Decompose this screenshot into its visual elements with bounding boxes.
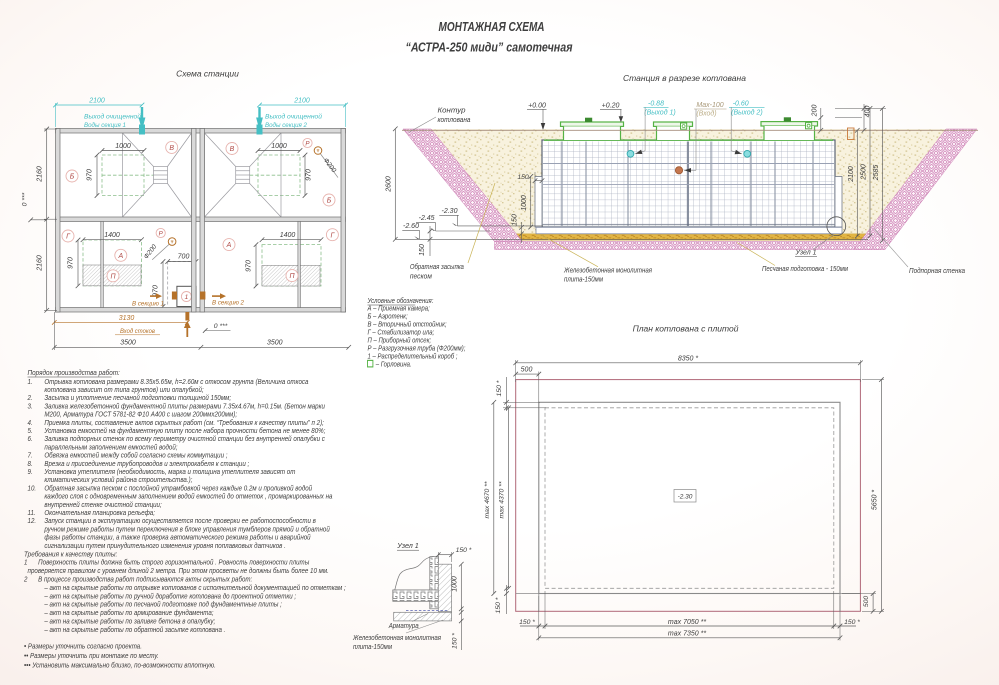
svg-text:(Выход 1): (Выход 1) [644,108,676,116]
svg-text:Засыпка и уплотнение песчаной: Засыпка и уплотнение песчаной подготовки… [44,394,231,402]
svg-text:Воды секция 1: Воды секция 1 [84,121,126,129]
svg-text:Узел 1: Узел 1 [396,541,419,550]
svg-text:– акт на скрытые работы по руч: – акт на скрытые работы по ручной дорабо… [43,592,296,600]
svg-text:150 *: 150 * [844,619,860,626]
svg-text:9.: 9. [28,469,33,476]
svg-text:Подпорная стенка: Подпорная стенка [909,267,965,275]
svg-text:Запуск станции в эксплуатацию: Запуск станции в эксплуатацию осуществля… [44,517,316,525]
svg-text:Установка утеплителя (необходи: Установка утеплителя (необходимость, мар… [43,468,295,476]
svg-text:Р – Разгрузочная труба (Ф200: Р – Разгрузочная труба (Ф200мм); [368,344,466,353]
svg-text:плита-150мм: плита-150мм [564,276,603,283]
svg-text:(Выход 2): (Выход 2) [731,108,763,116]
svg-text:max 4370 **: max 4370 ** [499,481,506,518]
svg-text:11.: 11. [28,510,36,517]
svg-text:Требования к качеству плиты:: Требования к качеству плиты: [24,550,117,558]
svg-text:3500: 3500 [267,339,283,346]
svg-text:2160: 2160 [37,166,44,183]
svg-text:М200, Арматура ГОСТ 5781-82 Ф1: М200, Арматура ГОСТ 5781-82 Ф10 А400 с ш… [44,411,237,418]
svg-text:150 *: 150 * [519,619,535,626]
svg-text:Выход очищенной: Выход очищенной [265,112,322,120]
svg-text:проверяется правилом с уровнем: проверяется правилом с уровнем длиной 2 … [28,567,329,575]
svg-text:Узел 1: Узел 1 [794,249,816,256]
svg-text:Обратная засыпка песком с посл: Обратная засыпка песком с послойной утра… [44,484,312,492]
svg-text:970: 970 [87,169,94,181]
svg-text:– акт на скрытые работы по арм: – акт на скрытые работы по армирование ф… [43,609,213,617]
svg-text:6.: 6. [28,436,33,443]
svg-text:(Вход): (Вход) [696,110,716,118]
svg-text:2.: 2. [27,395,33,402]
svg-text:1400: 1400 [280,232,296,239]
svg-text:4.: 4. [28,420,33,427]
svg-text:1: 1 [185,294,189,301]
svg-text:5.: 5. [28,428,33,435]
svg-text:2100: 2100 [88,98,105,105]
svg-text:В процессе производства работ: В процессе производства работ подписываю… [38,575,252,583]
svg-text:1000: 1000 [452,576,459,592]
svg-text:песком: песком [410,274,432,281]
svg-text:Б – Аэротенк;: Б – Аэротенк; [368,313,408,321]
svg-text:970: 970 [306,169,313,181]
svg-text:2: 2 [23,576,28,583]
svg-text:150: 150 [512,214,519,226]
svg-text:МОНТАЖНАЯ СХЕМА: МОНТАЖНАЯ СХЕМА [439,19,545,34]
svg-text:8350 *: 8350 * [678,355,699,362]
svg-text:– акт на скрытые работы по обр: – акт на скрытые работы по обратной засы… [43,626,225,634]
svg-text:Приемка плиты, составление акт: Приемка плиты, составление актов скрытых… [44,418,324,426]
svg-text:– акт на скрытые работы по зал: – акт на скрытые работы по заливке бетон… [43,617,215,625]
svg-text:2600: 2600 [386,176,393,193]
svg-text:970: 970 [68,257,75,269]
svg-text:Железобетонная монолитная: Железобетонная монолитная [352,634,441,642]
svg-text:Песчаная подготовка - 150мм: Песчаная подготовка - 150мм [762,265,848,273]
svg-text:Б: Б [70,174,75,181]
svg-text:– Горловина.: – Горловина. [375,361,412,369]
svg-text:– акт на скрытые работы по пес: – акт на скрытые работы по песчаной подг… [43,600,282,608]
svg-text:параллельным заполнением емкос: параллельным заполнением емкостей водой; [44,443,177,451]
svg-text:1.: 1. [28,379,33,386]
svg-text:Контур: Контур [438,108,466,115]
svg-text:Вход стоков: Вход стоков [120,327,155,335]
svg-text:П – Приборный отсек;: П – Приборный отсек; [368,336,432,345]
svg-text:max 7050 **: max 7050 ** [668,619,706,626]
svg-text:Отрывка котлована размерами 8.: Отрывка котлована размерами 8.35х5.65м, … [44,379,308,386]
svg-text:План котлована с плитой: План котлована с плитой [633,324,739,334]
svg-text:+0.00: +0.00 [528,102,546,109]
svg-text:8.: 8. [28,461,33,468]
svg-text:Станция в разрезе котлована: Станция в разрезе котлована [623,73,746,83]
svg-text:Заливка подпорных стенок по вс: Заливка подпорных стенок по всему периме… [44,435,325,443]
svg-text:3130: 3130 [119,315,135,322]
svg-text:Окончательная планировка релье: Окончательная планировка рельефа; [44,510,155,517]
svg-text:2100: 2100 [848,166,855,183]
svg-text:3500: 3500 [120,339,136,346]
svg-text:2500: 2500 [861,164,868,181]
svg-text:500: 500 [521,367,533,374]
svg-text:сигнализации путем принудитель: сигнализации путем принудительного измен… [44,541,286,549]
svg-text:-2.30: -2.30 [678,493,693,500]
svg-text:10.: 10. [28,485,37,492]
svg-text:Поверхность плиты должна быть: Поверхность плиты должна быть строго гор… [38,558,309,566]
svg-text:Врезка и присоединение трубопр: Врезка и присоединение трубопроводов и э… [44,459,249,467]
svg-text:-2.30: -2.30 [442,208,458,215]
svg-text:5650 *: 5650 * [871,490,878,511]
svg-text:В: В [230,146,235,153]
svg-text:150 *: 150 * [456,547,472,554]
svg-text:-0.60: -0.60 [733,100,749,107]
svg-text:-2.60: -2.60 [403,223,419,230]
svg-text:А: А [226,242,232,249]
svg-text:котлована: котлована [438,117,471,124]
svg-text:Железобетонная монолитная: Железобетонная монолитная [563,266,652,274]
svg-text:•• Размеры уточнить при монтаж: •• Размеры уточнить при монтаже по месту… [24,653,159,660]
svg-text:Арматура: Арматура [388,623,419,630]
svg-text:Установка емкостей на фундамен: Установка емкостей на фундаментную плиту… [43,427,325,435]
svg-text:1400: 1400 [104,232,120,239]
svg-text:В секцию 1: В секцию 1 [132,300,164,307]
svg-text:В: В [169,145,174,152]
svg-text:0 ***: 0 *** [214,323,228,330]
svg-text:1000: 1000 [115,143,131,150]
svg-text:2100: 2100 [293,98,310,105]
svg-text:••• Установить максимально бли: ••• Установить максимально близко, по-во… [24,661,216,669]
svg-text:“АСТРА-250 миди” самотечная: “АСТРА-250 миди” самотечная [406,40,573,55]
svg-text:В секцию 2: В секцию 2 [212,299,244,306]
svg-text:Условные обозначения:: Условные обозначения: [367,296,434,305]
svg-text:-2.45: -2.45 [419,215,435,222]
svg-text:А – Приемная камера;: А – Приемная камера; [367,305,430,313]
svg-text:Схема станции: Схема станции [176,69,239,79]
svg-text:Мах-100: Мах-100 [696,102,723,109]
svg-text:внутренней стенке очистной ста: внутренней стенке очистной станции; [44,500,162,508]
svg-text:плита-150мм: плита-150мм [353,644,392,651]
svg-text:3.: 3. [28,403,33,410]
svg-text:Г – Стабилизатор ила;: Г – Стабилизатор ила; [368,328,435,337]
svg-text:2585: 2585 [873,165,880,182]
svg-text:климатических условий района с: климатических условий района строительст… [44,476,192,484]
svg-text:Порядок производства работ:: Порядок производства работ: [28,369,120,377]
svg-text:Обвязка емкостей между собой с: Обвязка емкостей между собой согласно сх… [44,451,227,459]
svg-text:• Размеры уточнить согласно пр: • Размеры уточнить согласно проекта. [24,643,142,650]
svg-text:котлована зависит от типа грун: котлована зависит от типа грунтов) или о… [44,386,203,394]
svg-text:970: 970 [246,260,253,272]
svg-text:Выход очищенной: Выход очищенной [84,112,141,120]
svg-text:700: 700 [178,254,190,261]
svg-text:1000: 1000 [521,195,528,211]
svg-text:-0.88: -0.88 [648,100,664,107]
svg-text:А: А [117,253,123,260]
svg-text:В – Вторичный отстойник;: В – Вторичный отстойник; [368,320,447,329]
svg-text:150 *: 150 * [452,633,459,649]
svg-text:150: 150 [517,174,529,181]
svg-text:2160: 2160 [37,255,44,272]
svg-text:Б: Б [327,198,332,205]
svg-text:max 4670 **: max 4670 ** [484,481,491,518]
svg-text:Воды секция 2: Воды секция 2 [265,121,307,129]
svg-text:ручном режиме работы путем пер: ручном режиме работы путем переключения … [43,525,330,533]
svg-text:150 *: 150 * [495,597,502,613]
svg-text:– акт на скрытые работы по отр: – акт на скрытые работы по отрывке котло… [43,584,345,592]
svg-text:max 7350 **: max 7350 ** [668,630,706,637]
svg-text:200: 200 [812,105,819,118]
svg-text:1 – Распределительный короб: 1 – Распределительный короб ; [368,352,458,361]
svg-text:12.: 12. [28,518,37,525]
svg-text:1000: 1000 [271,143,287,150]
svg-text:7.: 7. [28,452,33,459]
svg-text:0 ***: 0 *** [22,192,29,206]
svg-text:Заливка железобетонной фундаме: Заливка железобетонной фундаментной плит… [44,402,325,410]
svg-text:500: 500 [863,596,870,608]
svg-text:фазы работы станции, а также п: фазы работы станции, а также проверка ав… [44,533,311,541]
svg-text:Обратная засыпка: Обратная засыпка [410,263,464,271]
svg-text:1: 1 [24,559,28,566]
svg-text:150 *: 150 * [496,380,503,396]
svg-text:150: 150 [419,244,426,256]
svg-text:+0.20: +0.20 [602,102,620,109]
svg-text:каждого слоя с одновременным з: каждого слоя с одновременным заполнением… [44,492,332,500]
